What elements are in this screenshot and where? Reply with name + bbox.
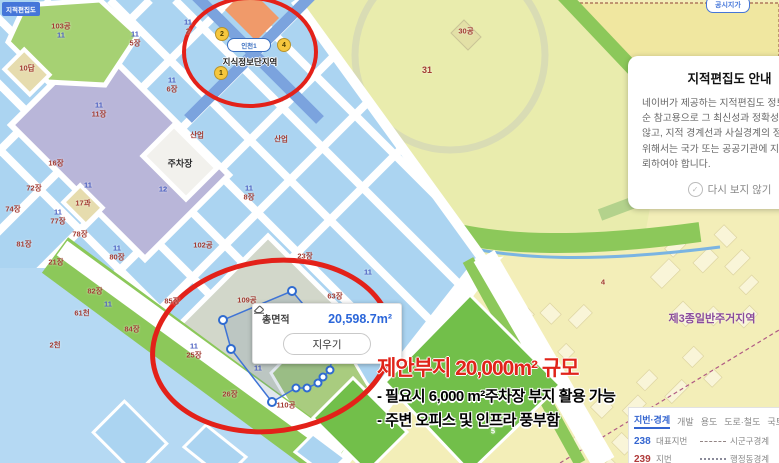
clear-button-label: 지우기 — [313, 337, 342, 352]
proposal-title: 제안부지 20,000m² 규모 — [377, 352, 615, 382]
map-option-button[interactable]: 공시지가 — [706, 0, 750, 13]
subway-line-badge: 인천1 — [227, 38, 271, 52]
legend-boundary-label: 시군구경계 — [730, 435, 769, 447]
dismiss-label: 다시 보지 않기 — [708, 182, 772, 197]
legend-parcel-label: 대표지번 — [656, 435, 700, 447]
station-exit-number: 4 — [277, 38, 291, 52]
legend-panel: 지번·경계개발용도도로·철도국토계획 238 대표지번 시군구경계 239 지번… — [628, 407, 779, 463]
legend-boundary-line-sample — [700, 441, 726, 442]
legend-tab[interactable]: 지번·경계 — [634, 413, 670, 429]
legend-tab[interactable]: 개발 — [677, 415, 694, 428]
cadastral-mode-chip[interactable]: 지적편집도 — [2, 2, 40, 16]
notice-body-line: 뢰하여야 합니다. — [642, 157, 779, 172]
station-exit-number: 2 — [215, 27, 229, 41]
notice-body-line: 네이버가 제공하는 지적편집도 정보는 단 — [642, 96, 779, 111]
notice-body-line: 않고, 지적 경계선과 사실경계의 정확한 확인을 — [642, 126, 779, 141]
legend-row: 238 대표지번 시군구경계 — [634, 435, 779, 447]
legend-boundary-line-sample — [700, 458, 726, 460]
legend-boundary-label: 행정동경계 — [730, 453, 769, 463]
legend-tab[interactable]: 국토계획 — [767, 415, 779, 428]
total-area-value: 20,598.7m² — [328, 312, 392, 326]
proposal-detail-line: - 주변 오피스 및 인프라 풍부함 — [377, 409, 615, 430]
station-exit-number: 1 — [214, 66, 228, 80]
total-area-label: 총면적 — [262, 311, 290, 326]
proposal-detail-line: - 필요시 6,000 m²주차장 부지 활용 가능 — [377, 385, 615, 406]
map-screenshot: 103공1110답115장112116장1111장산업산업주차장1112118장… — [0, 0, 779, 463]
legend-parcel-label: 지번 — [656, 453, 700, 463]
legend-parcel-number: 239 — [634, 454, 656, 463]
legend-tab[interactable]: 용도 — [701, 415, 718, 428]
cadastral-notice-panel: 지적편집도 안내 네이버가 제공하는 지적편집도 정보는 단순 참고용으로 그 … — [628, 56, 779, 209]
legend-rows: 238 대표지번 시군구경계 239 지번 행정동경계 — [634, 435, 779, 463]
check-icon: ✓ — [688, 182, 703, 197]
legend-tabs: 지번·경계개발용도도로·철도국토계획 — [634, 413, 779, 429]
dismiss-checkbox[interactable]: ✓ 다시 보지 않기 — [642, 182, 779, 197]
notice-body-line: 순 참고용으로 그 최신성과 정확성을 보장하지 — [642, 111, 779, 126]
station-name-label: 지식정보단지역 — [223, 56, 278, 68]
notice-body-line: 위해서는 국가 또는 공공기관에 지적측량을 의 — [642, 142, 779, 157]
notice-title: 지적편집도 안내 — [642, 68, 779, 87]
eraser-icon — [253, 304, 265, 314]
proposal-annotation: 제안부지 20,000m² 규모 - 필요시 6,000 m²주차장 부지 활용… — [377, 352, 615, 430]
clear-measure-button[interactable]: 지우기 — [283, 333, 371, 355]
legend-row: 239 지번 행정동경계 — [634, 453, 779, 463]
legend-parcel-number: 238 — [634, 436, 656, 447]
legend-tab[interactable]: 도로·철도 — [724, 415, 760, 428]
